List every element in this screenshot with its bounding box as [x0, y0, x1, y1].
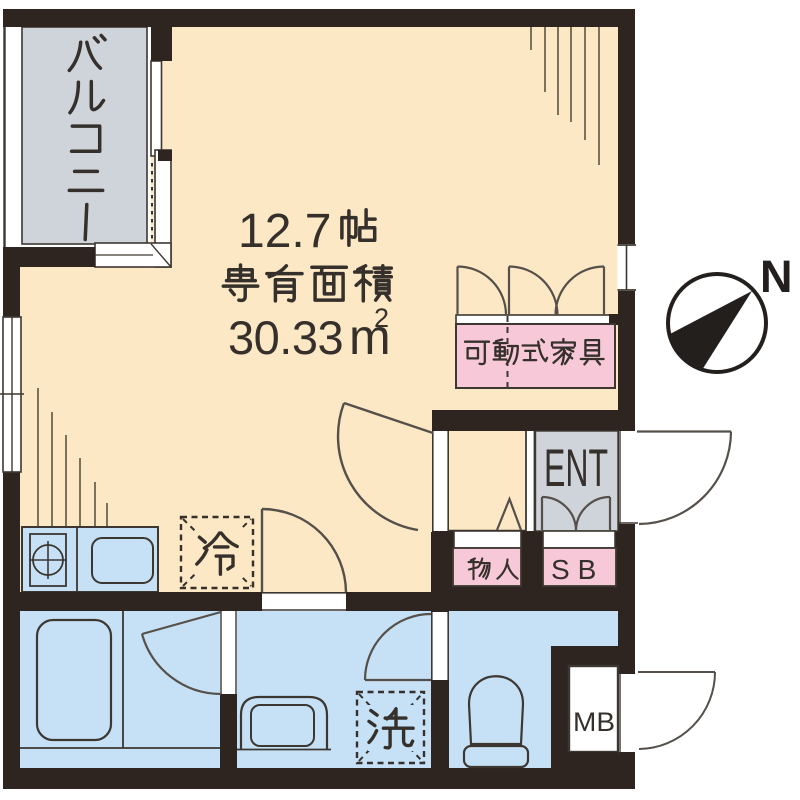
svg-text:12.7: 12.7: [238, 205, 331, 258]
svg-text:N: N: [760, 251, 793, 302]
svg-text:2: 2: [374, 303, 389, 333]
svg-text:ENT: ENT: [544, 439, 608, 498]
svg-text:30.33: 30.33: [228, 311, 343, 364]
svg-text:MB: MB: [573, 707, 615, 737]
svg-text:SB: SB: [551, 554, 604, 585]
